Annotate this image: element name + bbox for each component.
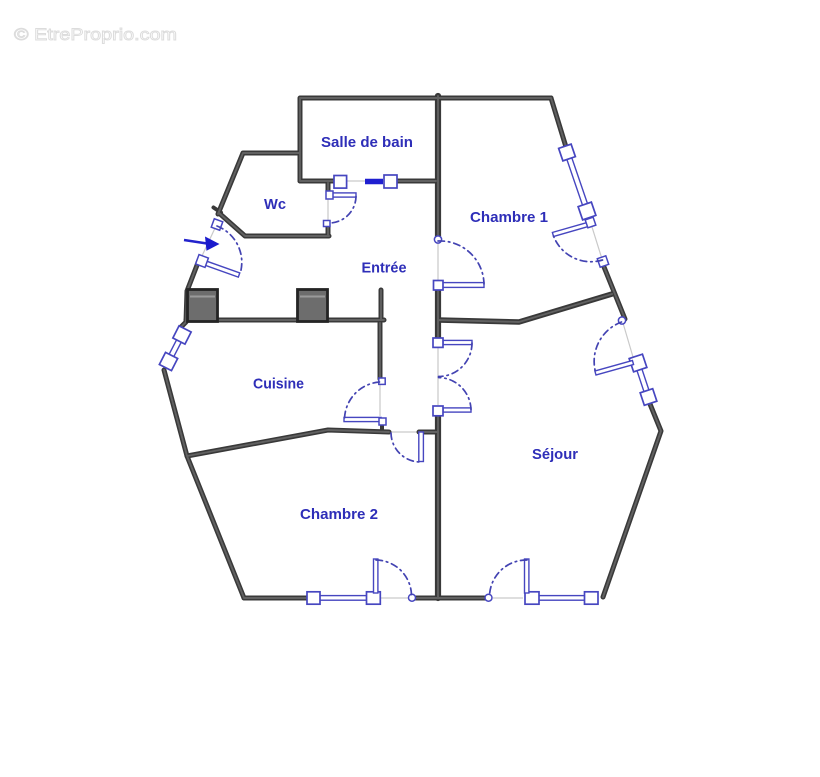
svg-text:Séjour: Séjour — [532, 446, 578, 463]
svg-text:Salle de bain: Salle de bain — [321, 134, 413, 151]
svg-text:© EtreProprio.com: © EtreProprio.com — [14, 25, 177, 44]
svg-text:Chambre 2: Chambre 2 — [300, 506, 378, 523]
svg-text:Chambre 1: Chambre 1 — [470, 209, 548, 226]
svg-text:Cuisine: Cuisine — [253, 376, 304, 393]
svg-text:Entrée: Entrée — [362, 260, 407, 277]
svg-text:Wc: Wc — [264, 196, 286, 213]
